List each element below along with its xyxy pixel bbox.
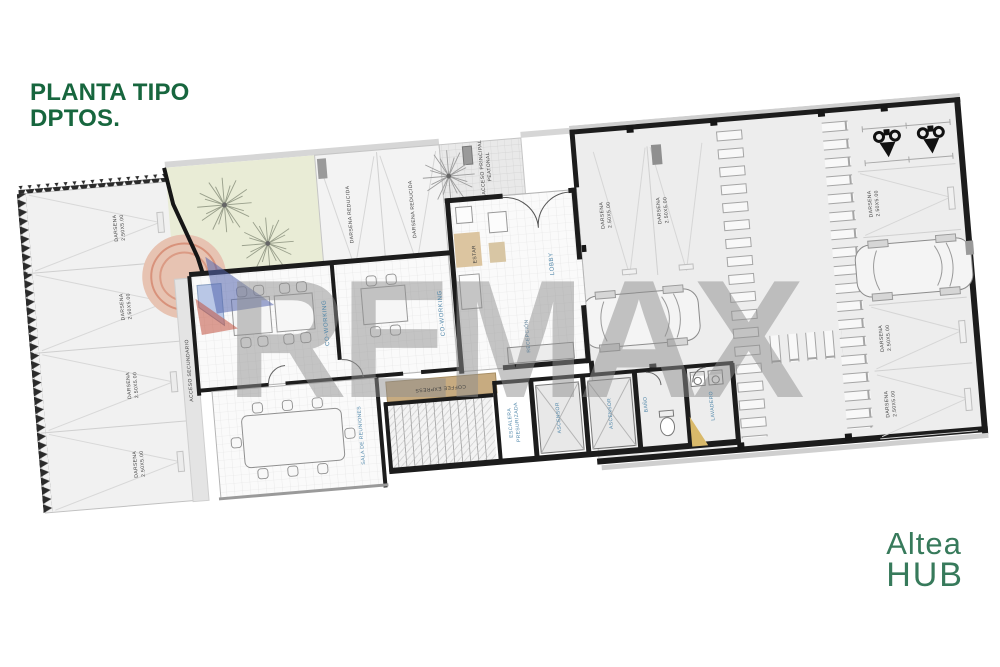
brand-line2: HUB (886, 559, 964, 591)
car-icon (854, 233, 975, 302)
brand-line1: Altea (886, 528, 964, 559)
title-line1: PLANTA TIPO (30, 80, 190, 106)
label-lobby: LOBBY (547, 252, 557, 276)
label-darsena: DARSENA 2.50X5.00 (878, 324, 894, 352)
label-bano: BAÑO (642, 396, 650, 412)
label-darsena: DARSENA 2.50X5.00 (866, 190, 882, 218)
label-estar: ESTAR (471, 245, 480, 264)
label-darsena: DARSENA 2.50X5.00 (883, 390, 899, 418)
label-darsena: DARSENA 2.50X5.00 (118, 292, 134, 320)
floor-plan: REMAX DARSENA 2.50X5.00 DARSENA 2.50X5.0… (15, 93, 991, 523)
label-darsena: DARSENA 2.50X5.00 (132, 450, 148, 478)
altea-hub-logo: Altea HUB (886, 528, 964, 591)
label-darsena: DARSENA 2.50X5.00 (655, 196, 671, 224)
page-title: PLANTA TIPO DPTOS. (30, 80, 190, 131)
label-darsena: DARSENA 2.50X5.00 (112, 214, 128, 242)
title-line2: DPTOS. (30, 106, 190, 132)
label-darsena: DARSENA 2.50X5.00 (125, 371, 141, 399)
label-darsena: DARSENA 2.50X5.00 (598, 201, 614, 229)
